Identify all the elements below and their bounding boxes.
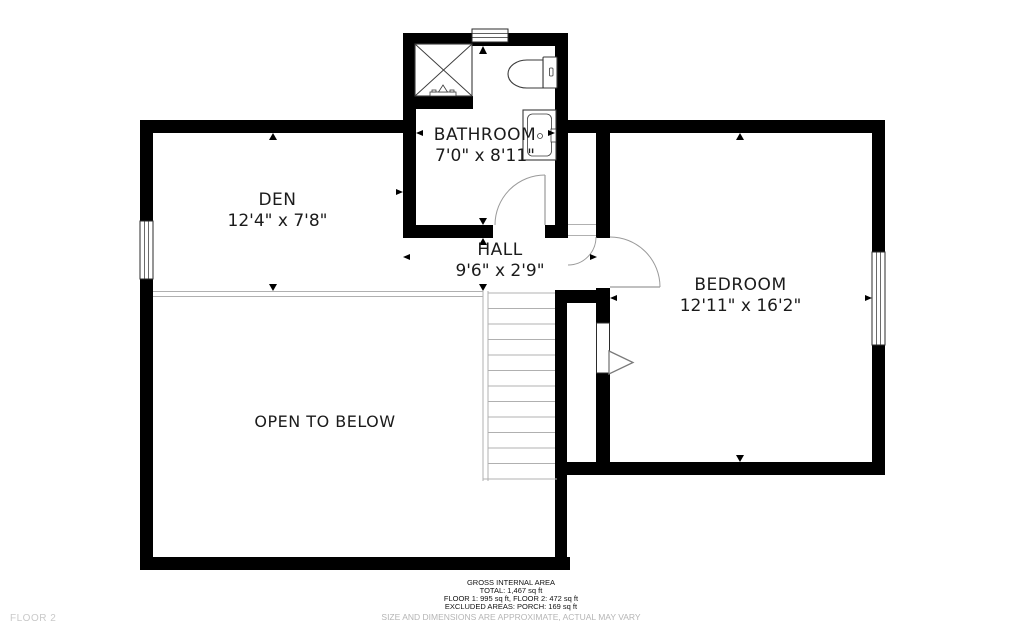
room-name: DEN	[175, 190, 380, 211]
floorplan: BATHROOM 7'0" x 8'11" DEN 12'4" x 7'8" H…	[0, 0, 1024, 639]
room-name: BEDROOM	[628, 275, 853, 296]
room-name: BATHROOM	[385, 125, 585, 146]
area-excluded: EXCLUDED AREAS: PORCH: 169 sq ft	[311, 603, 711, 611]
room-label-bathroom: BATHROOM 7'0" x 8'11"	[385, 125, 585, 167]
room-dimensions: 9'6" x 2'9"	[400, 261, 600, 282]
floor-label: FLOOR 2	[10, 613, 56, 624]
stairs-direction-arrow	[609, 351, 633, 374]
room-label-bedroom: BEDROOM 12'11" x 16'2"	[628, 275, 853, 317]
room-dimensions: 12'11" x 16'2"	[628, 296, 853, 317]
shower-icon	[415, 44, 472, 96]
room-label-hall: HALL 9'6" x 2'9"	[400, 240, 600, 282]
area-summary: GROSS INTERNAL AREA TOTAL: 1,467 sq ft F…	[311, 579, 711, 622]
room-label-den: DEN 12'4" x 7'8"	[175, 190, 380, 232]
room-name: HALL	[400, 240, 600, 261]
bathroom-door-swing	[495, 175, 545, 225]
area-disclaimer: SIZE AND DIMENSIONS ARE APPROXIMATE, ACT…	[311, 612, 711, 622]
toilet-icon	[508, 57, 557, 88]
window-bedroom-right	[872, 252, 885, 345]
room-dimensions: 7'0" x 8'11"	[385, 146, 585, 167]
window-den-left	[140, 221, 153, 279]
window-void-wall	[597, 323, 610, 373]
room-label-open-to-below: OPEN TO BELOW	[200, 412, 450, 431]
floorplan-canvas	[0, 0, 1024, 639]
open-to-below-boundary	[153, 292, 483, 297]
staircase	[483, 291, 557, 481]
window-bathroom-top	[472, 29, 508, 42]
room-dimensions: 12'4" x 7'8"	[175, 211, 380, 232]
